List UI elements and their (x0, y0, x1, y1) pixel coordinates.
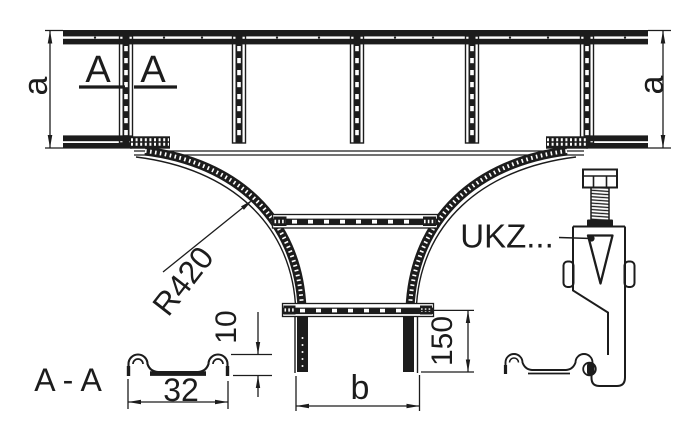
bolt-thread (591, 188, 609, 222)
section-cut-label-right: A (140, 51, 165, 89)
clamp-body (564, 170, 635, 387)
section-view-title: A - A (34, 364, 102, 396)
branch-rung-lower (283, 304, 434, 317)
section-cut-label-left: A (85, 51, 110, 89)
dim-32-label: 32 (163, 374, 199, 406)
dim-150-label: 150 (428, 316, 458, 366)
dim-a-right-label: a (635, 76, 669, 95)
dim-a-left-label: a (19, 77, 53, 96)
ladder-rungs (120, 36, 594, 143)
dim-10-label: 10 (212, 310, 242, 343)
branch-rung-upper (273, 215, 438, 229)
clamp-wedge (588, 236, 613, 284)
branch-rails (295, 308, 418, 373)
bolt-head (583, 170, 617, 188)
dim-b-label: b (351, 371, 370, 405)
drawing-stage: a a A A R420 UKZ... A - A 10 32 b 150 (0, 0, 697, 427)
bolt-collar (587, 220, 613, 227)
clamp-rung-profile (506, 354, 596, 376)
clamp-ref-label: UKZ... (460, 220, 554, 253)
